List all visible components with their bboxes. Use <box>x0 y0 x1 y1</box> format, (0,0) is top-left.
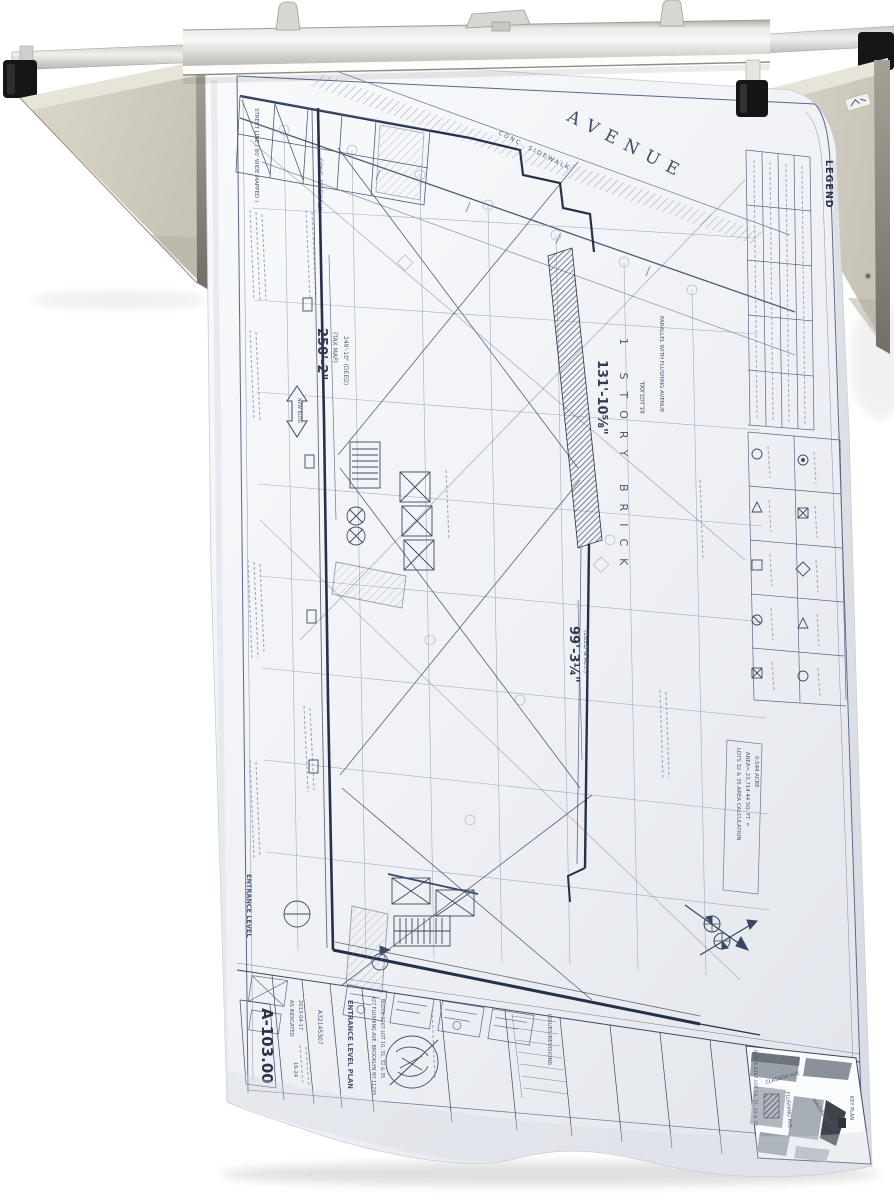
parallel-note: PARALLEL WITH FLUSHING AVENUE <box>658 316 664 413</box>
drawing-title: ENTRANCE LEVEL PLAN <box>346 1000 354 1089</box>
product-photo-blueprint-rack: AVENUE CONC. SIDEWALK STREET LINE ( 80' … <box>0 0 894 1204</box>
entrance-level-label: ENTRANCE LEVEL <box>245 874 253 937</box>
sheet-number: A-103.00 <box>258 1008 276 1084</box>
hanger-hook-right <box>660 0 684 26</box>
dim-249: 249'-10" (DEED) <box>342 336 349 385</box>
tax-lot-label: TAX LOT 14 <box>638 381 644 414</box>
dim-99-note: (DEED & ACT.) <box>582 630 589 673</box>
street-line-label: STREET LINE ( 80' WIDE MAPPED ) <box>253 108 259 202</box>
dim-99: 99'-3¼" <box>566 626 581 683</box>
revisions-label: ISSUES/REVISIONS <box>546 1014 552 1066</box>
bracket-left <box>20 60 209 309</box>
dim-250: 250'-2" <box>314 328 329 380</box>
key-plan-title: KEY PLAN <box>848 1096 854 1120</box>
area-note-line1: LOTS 32 & 35 AREA CALCULATION <box>735 748 741 841</box>
project-address-line1: 427 FLUSHING AVE, BROOKLYN NY 11205 <box>370 996 376 1095</box>
story-brick-label: 1 STORY BRICK <box>617 338 630 577</box>
sheet-index: 16-24 <box>292 1062 298 1078</box>
dim-250-note: (TAX MAP) <box>331 332 338 363</box>
dim-131: 131'-10⅝" <box>594 360 609 435</box>
scene-svg: AVENUE CONC. SIDEWALK STREET LINE ( 80' … <box>0 0 894 1204</box>
scale-value: AS INDICATED <box>288 1000 294 1037</box>
legend-title: LEGEND <box>823 160 834 209</box>
new-bldg-label: NEW BLDG <box>296 398 302 424</box>
area-note-line3: 0.544 ACRE <box>753 756 759 788</box>
project-address-line2: BLOCK 2267 LOT 10, 31, 32 & 35 <box>379 999 385 1078</box>
key-plan-block-note: BLOCK 2267 LOT 10, 31, 32 & 35 <box>752 1050 758 1126</box>
hanger-hook-left <box>276 2 300 30</box>
area-note-line2: AREA= 23,714.44 SQ. FT. = <box>744 752 750 827</box>
job-number: A32145307 <box>316 1010 323 1045</box>
date-value: 2013-04-17 <box>297 1000 303 1030</box>
